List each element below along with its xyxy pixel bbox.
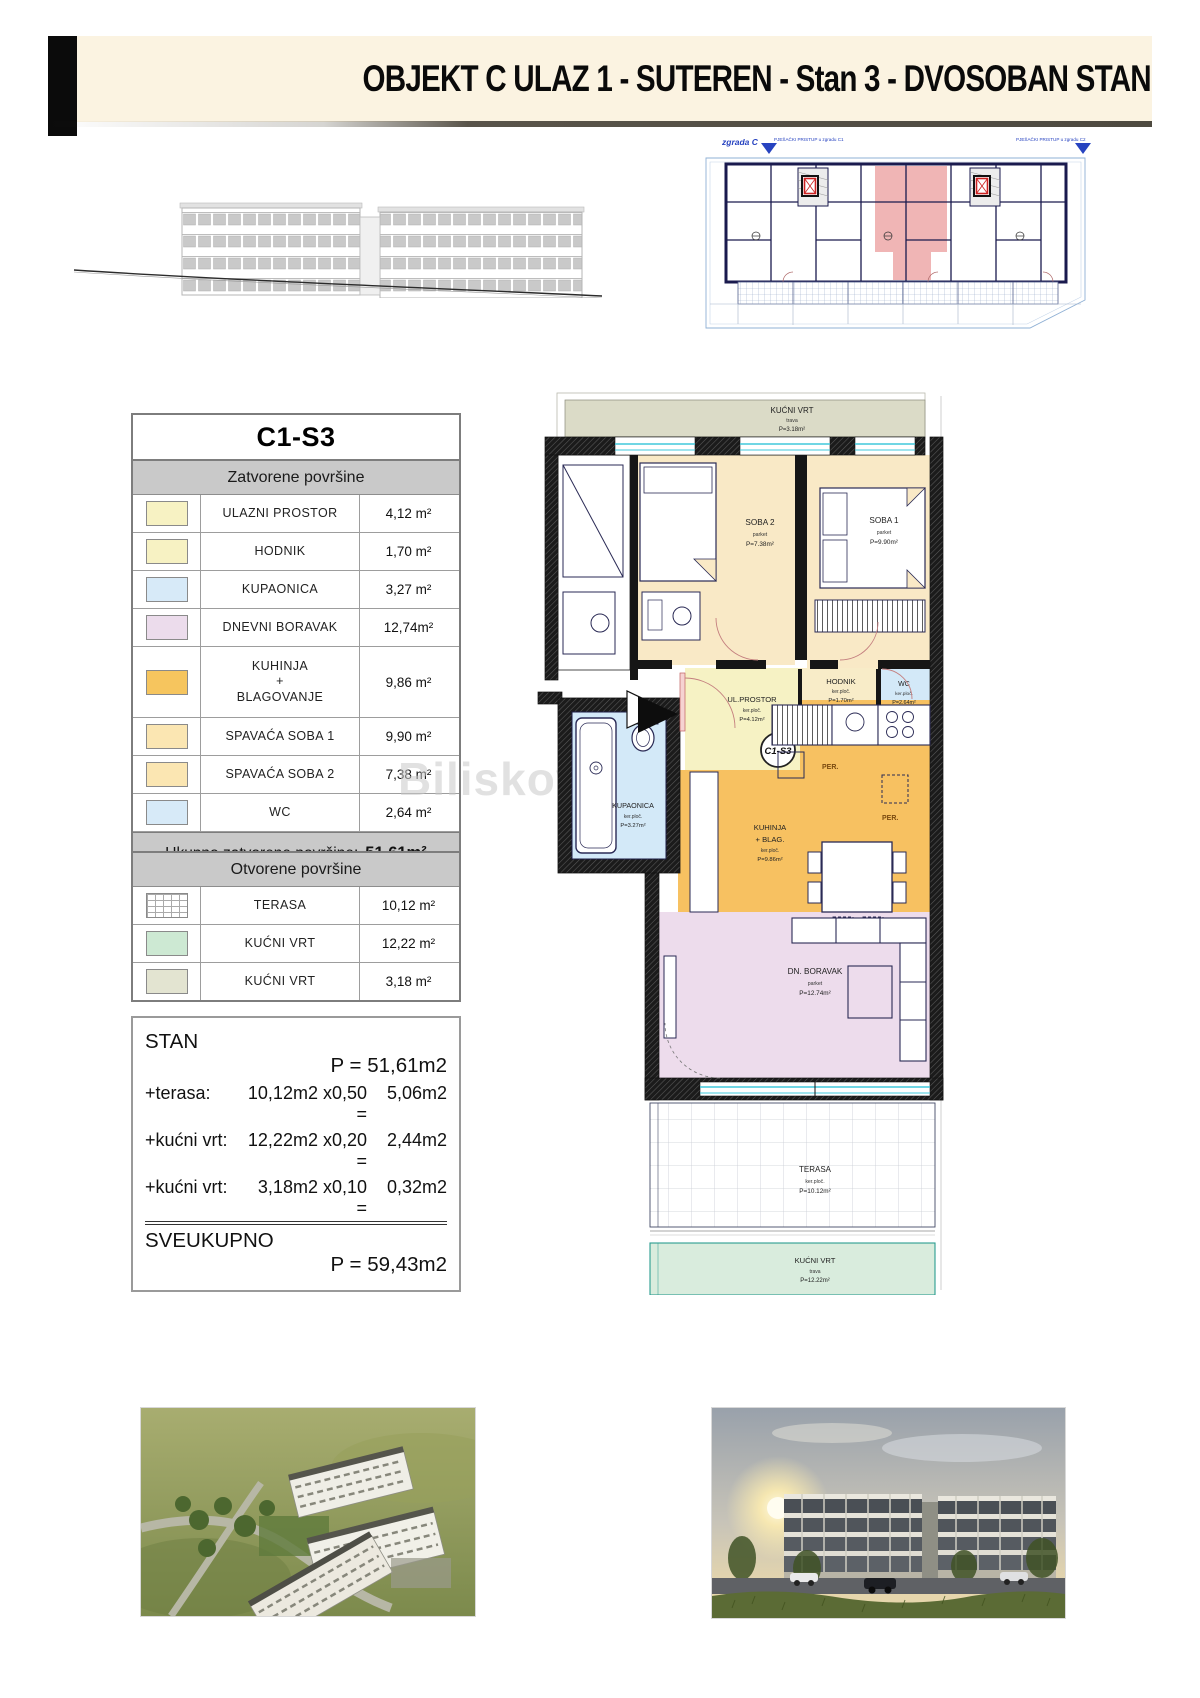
- table-row: KUHINJA + BLAGOVANJE 9,86 m²: [133, 647, 459, 718]
- stair-core: [970, 168, 1000, 206]
- terrace-grid-swatch: [146, 893, 188, 918]
- svg-text:parket: parket: [808, 981, 823, 987]
- room-name: SPAVAĆA SOBA 2: [201, 756, 360, 793]
- color-swatch: [146, 800, 188, 825]
- area-calculation-box: STAN P = 51,61m2 +terasa: 10,12m2 x0,50 …: [131, 1016, 461, 1292]
- room-area: 9,86 m²: [360, 647, 457, 717]
- color-swatch: [146, 539, 188, 564]
- per-label: PER.: [822, 764, 838, 771]
- table-row: ULAZNI PROSTOR 4,12 m²: [133, 495, 459, 533]
- room-area: 3,18 m²: [360, 963, 457, 1000]
- pedestrian-access-label-2: PJEŠAČKI PRISTUP u zgradu C2: [1016, 136, 1086, 142]
- stair-tower: [922, 1502, 938, 1582]
- calc-row-total: SVEUKUPNO P = 59,43m2: [145, 1224, 447, 1280]
- table-row: KUĆNI VRT 12,22 m²: [133, 925, 459, 963]
- room-area: 4,12 m²: [360, 495, 457, 532]
- room-label: DN. BORAVAK: [788, 967, 843, 976]
- calc-row-vrt2: +kućni vrt: 3,18m2 x0,10 = 0,32m2: [145, 1174, 447, 1222]
- bathtub: [576, 718, 616, 853]
- elevation-right-building: [360, 207, 584, 298]
- svg-text:trava: trava: [786, 418, 798, 424]
- room-label: KUHINJA: [754, 823, 787, 832]
- calc-row-vrt1: +kućni vrt: 12,22m2 x0,20 = 2,44m2: [145, 1127, 447, 1174]
- svg-text:ker.ploč.: ker.ploč.: [895, 691, 913, 697]
- per-label: PER.: [882, 815, 898, 822]
- svg-text:parket: parket: [753, 532, 768, 538]
- svg-text:P=9.90m²: P=9.90m²: [870, 539, 898, 546]
- parking: [391, 1558, 451, 1588]
- color-swatch: [146, 969, 188, 994]
- room-label: HODNIK: [826, 677, 856, 686]
- calc-row-terasa: +terasa: 10,12m2 x0,50 = 5,06m2: [145, 1080, 447, 1127]
- svg-text:trava: trava: [809, 1269, 820, 1275]
- room-name: KUĆNI VRT: [201, 963, 360, 1000]
- svg-text:P=10.12m²: P=10.12m²: [799, 1188, 830, 1195]
- color-swatch: [146, 577, 188, 602]
- room-name: KUĆNI VRT: [201, 925, 360, 962]
- color-swatch: [146, 615, 188, 640]
- access-arrow-icon: [1075, 143, 1091, 154]
- room-name: KUPAONICA: [201, 571, 360, 608]
- calc-row-stan: STAN P = 51,61m2: [145, 1027, 447, 1080]
- svg-text:P=1.70m²: P=1.70m²: [828, 698, 853, 704]
- room-label: KUPAONICA: [612, 801, 654, 810]
- unit-id-title: C1-S3: [133, 415, 459, 461]
- svg-text:P=4.12m²: P=4.12m²: [739, 717, 764, 723]
- room-garden-top: KUĆNI VRT trava P=3.18m²: [565, 400, 925, 437]
- svg-text:ker.ploč.: ker.ploč.: [761, 848, 780, 854]
- svg-text:ker.ploč.: ker.ploč.: [743, 708, 762, 714]
- svg-text:P=12.74m²: P=12.74m²: [799, 990, 830, 997]
- room-area: 3,27 m²: [360, 571, 457, 608]
- room-terasa: TERASA ker.ploč. P=10.12m²: [650, 1103, 935, 1227]
- color-swatch: [146, 762, 188, 787]
- open-areas-header: Otvorene površine: [133, 853, 459, 887]
- title-band: OBJEKT C ULAZ 1 - SUTEREN - Stan 3 - DVO…: [48, 36, 1152, 122]
- table-row: KUĆNI VRT 3,18 m²: [133, 963, 459, 1000]
- table-row: KUPAONICA 3,27 m²: [133, 571, 459, 609]
- room-label: KUĆNI VRT: [795, 1256, 836, 1265]
- building-block: [710, 164, 1081, 325]
- room-garden-bottom: KUĆNI VRT trava P=12.22m²: [650, 1243, 935, 1295]
- table-row: TERASA 10,12 m²: [133, 887, 459, 925]
- color-swatch: [146, 724, 188, 749]
- site-elevation-drawing: [62, 183, 602, 298]
- tall-cabinet: [690, 772, 718, 912]
- room-name: WC: [201, 794, 360, 831]
- bed: [640, 463, 716, 581]
- stair-core: [798, 168, 828, 206]
- tv-cabinet: [664, 956, 676, 1038]
- room-name: ULAZNI PROSTOR: [201, 495, 360, 532]
- room-area: 1,70 m²: [360, 533, 457, 570]
- svg-text:ker.ploč.: ker.ploč.: [624, 814, 643, 820]
- building-label: zgrada C: [721, 137, 759, 147]
- room-label: SOBA 1: [869, 516, 899, 525]
- room-area: 10,12 m²: [360, 887, 457, 924]
- render-aerial-image: [141, 1408, 475, 1616]
- access-arrow-icon: [761, 143, 777, 154]
- table-row: HODNIK 1,70 m²: [133, 533, 459, 571]
- color-swatch: [146, 931, 188, 956]
- room-label: TERASA: [799, 1165, 832, 1174]
- bed: [820, 488, 925, 588]
- room-name: TERASA: [201, 887, 360, 924]
- color-swatch: [146, 501, 188, 526]
- pedestrian-access-label-1: PJEŠAČKI PRISTUP u zgradu C1: [774, 136, 844, 142]
- highlighted-unit-lower: [893, 252, 931, 280]
- room-area: 12,74m²: [360, 609, 457, 646]
- area-table-open: Otvorene površine TERASA 10,12 m² KUĆNI …: [131, 851, 461, 1002]
- table-row: DNEVNI BORAVAK 12,74m²: [133, 609, 459, 647]
- apartment-floorplan: KUĆNI VRT trava P=3.18m²: [530, 360, 945, 1295]
- terrace-window: [700, 1082, 930, 1096]
- svg-text:P=3.18m²: P=3.18m²: [779, 427, 805, 433]
- svg-text:P=3.27m²: P=3.27m²: [620, 823, 645, 829]
- site-floorplan-overview: zgrada C PJEŠAČKI PRISTUP u zgradu C1 PJ…: [698, 132, 1093, 337]
- room-kupaonica-block: KUPAONICA ker.ploč. P=3.27m²: [558, 698, 680, 873]
- page-title: OBJEKT C ULAZ 1 - SUTEREN - Stan 3 - DVO…: [171, 58, 1151, 100]
- room-name: HODNIK: [201, 533, 360, 570]
- room-name: DNEVNI BORAVAK: [201, 609, 360, 646]
- closed-areas-header: Zatvorene površine: [133, 461, 459, 495]
- wardrobe: [815, 600, 925, 632]
- room-area: 12,22 m²: [360, 925, 457, 962]
- render-street-image: [712, 1408, 1065, 1618]
- table-row: SPAVAĆA SOBA 1 9,90 m²: [133, 718, 459, 756]
- title-band-underline: [48, 121, 1152, 127]
- svg-text:parket: parket: [877, 530, 892, 536]
- svg-text:ker.ploč.: ker.ploč.: [805, 1179, 824, 1185]
- svg-text:P=9.86m²: P=9.86m²: [757, 857, 782, 863]
- svg-text:P=12.22m²: P=12.22m²: [800, 1278, 830, 1284]
- room-name: KUHINJA + BLAGOVANJE: [201, 647, 360, 717]
- svg-text:P=7.38m²: P=7.38m²: [746, 541, 774, 548]
- svg-text:+ BLAG.: + BLAG.: [756, 835, 785, 844]
- room-area: 9,90 m²: [360, 718, 457, 755]
- room-name: SPAVAĆA SOBA 1: [201, 718, 360, 755]
- color-swatch: [146, 670, 188, 695]
- window: [615, 437, 915, 455]
- neighbor-furniture: [563, 465, 623, 654]
- room-label: UL.PROSTOR: [727, 695, 777, 704]
- terraces-band: [738, 282, 1058, 304]
- room-label: KUĆNI VRT: [771, 406, 814, 415]
- room-label: SOBA 2: [745, 518, 775, 527]
- entry-door: [680, 673, 685, 731]
- garden-plots: [710, 304, 1081, 325]
- desk-chair: [642, 592, 700, 640]
- area-table-closed: C1-S3 Zatvorene površine ULAZNI PROSTOR …: [131, 413, 461, 876]
- svg-text:ker.ploč.: ker.ploč.: [832, 689, 851, 695]
